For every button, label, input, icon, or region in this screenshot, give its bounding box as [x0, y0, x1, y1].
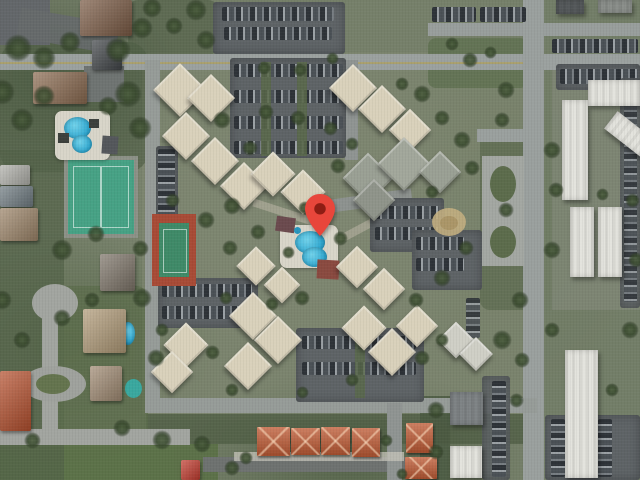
tree [53, 309, 71, 327]
south-building [450, 392, 483, 425]
tree [132, 240, 149, 257]
tree [543, 241, 561, 259]
tree [433, 269, 451, 287]
pool-shed [101, 135, 118, 154]
tree [396, 468, 408, 480]
pool-pavilion [275, 216, 296, 233]
east-building [598, 207, 622, 277]
tree [105, 37, 131, 63]
tree [225, 383, 239, 397]
tree [132, 288, 152, 308]
tree [497, 81, 515, 99]
north-building [556, 0, 584, 14]
tree [380, 434, 393, 447]
tree [625, 193, 640, 208]
tree [165, 17, 183, 35]
tree [24, 432, 41, 449]
tree [59, 31, 81, 53]
tree [509, 393, 524, 408]
tree [197, 211, 215, 229]
tree [511, 291, 529, 309]
tree [222, 240, 238, 256]
tree [293, 63, 307, 77]
tree [33, 85, 55, 107]
tree [434, 110, 450, 126]
tree [147, 349, 165, 367]
tree [13, 331, 31, 349]
tree [408, 292, 424, 308]
tree [492, 330, 512, 350]
tree [205, 345, 220, 360]
north-building [598, 0, 632, 13]
tree [4, 34, 32, 62]
east-building [562, 100, 588, 200]
tree [257, 61, 271, 75]
pool-pavilion [317, 259, 340, 279]
tree [296, 386, 309, 399]
tree [250, 224, 266, 240]
tree [282, 246, 295, 259]
car-row [234, 90, 343, 103]
house [80, 0, 132, 36]
tree [152, 430, 172, 450]
house [0, 371, 31, 431]
tree [323, 121, 338, 136]
tree [445, 37, 459, 51]
pool-pavilion [89, 119, 99, 128]
tree [290, 110, 306, 126]
car-row [224, 27, 332, 40]
circular-driveway-island [36, 374, 70, 394]
tree [265, 297, 279, 311]
tennis-court-lines [73, 166, 101, 228]
house [0, 186, 33, 207]
car-row [222, 7, 334, 21]
tree [128, 116, 152, 140]
townhouse [321, 427, 350, 455]
tree [213, 111, 231, 129]
car-row [480, 7, 526, 22]
tree [258, 104, 274, 120]
car-row [552, 39, 638, 53]
tree [435, 333, 449, 347]
satellite-map[interactable] [0, 0, 640, 480]
tree [223, 197, 241, 215]
entrance-island-1 [490, 166, 516, 202]
house [83, 309, 126, 353]
red-court-lines [163, 229, 187, 273]
tree [10, 108, 34, 132]
tree [196, 30, 216, 50]
tree [345, 137, 359, 151]
tree [453, 131, 471, 149]
tree [114, 80, 142, 108]
tree [224, 460, 240, 476]
tree [605, 383, 619, 397]
tree [462, 52, 478, 68]
east-building [588, 80, 640, 106]
entrance-drive [477, 129, 525, 142]
tree [326, 52, 339, 65]
tree [427, 401, 445, 419]
tree [165, 193, 180, 208]
townhouse [291, 428, 320, 455]
tree [428, 444, 444, 460]
tree [193, 435, 211, 453]
tree [628, 252, 640, 268]
house [90, 366, 122, 401]
tree [544, 322, 560, 338]
tree [330, 158, 346, 174]
house [181, 460, 200, 480]
tree [219, 291, 233, 305]
pin-icon [305, 194, 335, 236]
car-row [466, 298, 480, 338]
residential-pool [125, 379, 142, 398]
tree [131, 17, 153, 39]
car-row [432, 7, 476, 22]
pool-pavilion [58, 133, 69, 143]
tree [87, 225, 105, 243]
townhouse [352, 428, 380, 457]
car-row [551, 419, 565, 477]
tree [498, 202, 514, 218]
tree [494, 112, 510, 128]
house [0, 208, 38, 241]
tree [621, 321, 639, 339]
tree [345, 373, 359, 387]
car-row [492, 381, 506, 477]
tree [98, 96, 118, 116]
tree [51, 239, 73, 261]
tree [84, 292, 100, 308]
car-row [598, 419, 612, 477]
south-building [450, 446, 482, 478]
northwest-pool [72, 135, 92, 153]
tree [596, 188, 609, 201]
east-building [565, 350, 598, 478]
location-pin-marker[interactable] [305, 194, 335, 236]
tree [32, 46, 56, 70]
tree [514, 352, 530, 368]
entrance-island-2 [490, 226, 516, 258]
tree [543, 141, 561, 159]
tree [185, 0, 207, 21]
tree [395, 77, 409, 91]
tree [242, 140, 258, 156]
spa [294, 227, 301, 234]
tree [464, 160, 480, 176]
car-row [234, 64, 343, 77]
tree [484, 46, 497, 59]
tree [239, 451, 253, 465]
tree [413, 85, 431, 103]
car-row [416, 237, 464, 250]
tennis-court-lines [101, 166, 129, 228]
tree [113, 419, 131, 437]
east-building [570, 207, 594, 277]
tree [548, 182, 564, 198]
townhouse [405, 457, 437, 479]
tree [294, 290, 310, 306]
playground-sand [440, 216, 458, 230]
tree [414, 350, 430, 366]
tree [425, 185, 439, 199]
house [0, 165, 30, 185]
tree [155, 323, 169, 337]
townhouse [257, 427, 290, 456]
house [100, 254, 135, 291]
tree [458, 240, 474, 256]
